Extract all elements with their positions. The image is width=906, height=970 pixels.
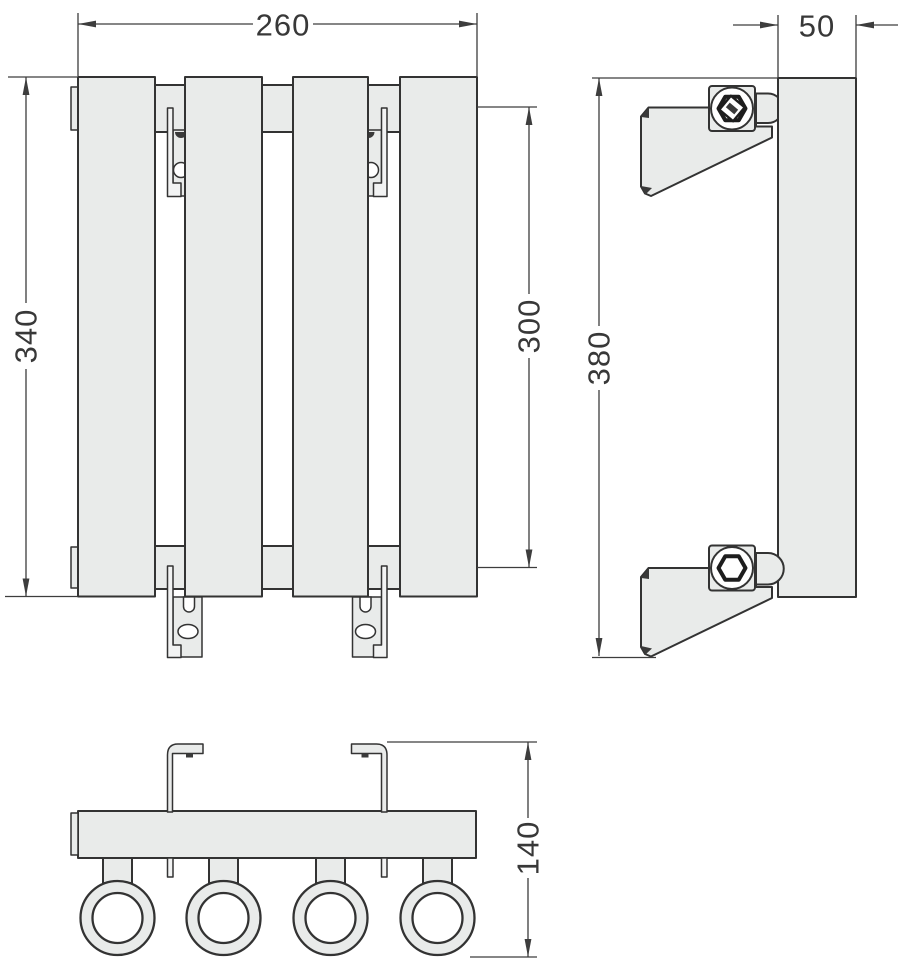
tube-stem-2 bbox=[209, 858, 238, 883]
front-view: 260 340 300 bbox=[5, 8, 547, 658]
arrow-bottom bbox=[23, 579, 30, 597]
bottom-collector-cap bbox=[71, 813, 78, 855]
arrow-top bbox=[525, 742, 532, 760]
bracket-fold bbox=[641, 569, 649, 580]
arrow-left bbox=[760, 22, 778, 29]
side-plug-bottom bbox=[709, 546, 755, 591]
tube-inner-2 bbox=[199, 893, 249, 943]
technical-drawing-page: 260 340 300 bbox=[0, 0, 906, 970]
dim-side-depth: 50 bbox=[733, 9, 898, 78]
bottom-collector bbox=[78, 811, 476, 858]
hook-body bbox=[168, 744, 204, 812]
side-view: 50 380 bbox=[582, 9, 899, 658]
front-panel-1 bbox=[78, 77, 155, 597]
hook-nub bbox=[186, 754, 193, 758]
dim-label-mounting-depth: 140 bbox=[511, 821, 546, 876]
bracket-u-slot bbox=[360, 597, 371, 612]
front-top-collector-cap bbox=[71, 87, 78, 130]
arrow-right bbox=[459, 21, 477, 28]
hook-lower-rail bbox=[382, 858, 388, 877]
hook-lower-rail bbox=[168, 858, 174, 877]
bracket-oval-slot bbox=[178, 625, 198, 639]
tube-inner-1 bbox=[93, 893, 143, 943]
arrow-bottom bbox=[596, 638, 603, 656]
front-bottom-collector-cap bbox=[71, 547, 78, 588]
tube-stem-1 bbox=[103, 858, 132, 883]
dim-front-height: 340 bbox=[5, 77, 77, 597]
tube-stems bbox=[103, 858, 452, 883]
hook-nub bbox=[362, 754, 369, 758]
front-panel-4 bbox=[400, 77, 477, 597]
front-panels bbox=[78, 77, 477, 597]
side-connection-stub-bottom bbox=[756, 553, 784, 585]
dim-label-overall-height: 380 bbox=[582, 331, 617, 386]
bracket-fold bbox=[641, 108, 649, 119]
tube-inner-4 bbox=[413, 893, 463, 943]
tube-stem-3 bbox=[316, 858, 345, 883]
arrow-top bbox=[596, 78, 603, 96]
arrow-top bbox=[23, 77, 30, 95]
dim-label-depth: 50 bbox=[799, 9, 835, 44]
arrow-bottom bbox=[525, 939, 532, 957]
bracket-oval-slot bbox=[356, 625, 376, 639]
dim-connection-spacing: 300 bbox=[477, 107, 547, 568]
tube-sections bbox=[81, 881, 475, 955]
arrow-bottom bbox=[526, 550, 533, 568]
side-valve-top bbox=[709, 86, 755, 131]
bottom-view: 140 bbox=[71, 742, 546, 957]
dim-label-spacing: 300 bbox=[512, 299, 547, 354]
bracket-u-slot bbox=[184, 597, 195, 612]
dim-label-height: 340 bbox=[9, 309, 44, 364]
tube-stem-4 bbox=[423, 858, 452, 883]
front-panel-2 bbox=[185, 77, 262, 597]
dim-front-width: 260 bbox=[78, 8, 477, 77]
front-panel-3 bbox=[293, 77, 368, 597]
arrow-right bbox=[856, 22, 874, 29]
drawing-canvas: 260 340 300 bbox=[0, 0, 906, 970]
side-panel bbox=[778, 78, 856, 597]
dim-label-width: 260 bbox=[256, 8, 311, 43]
tube-inner-3 bbox=[306, 893, 356, 943]
arrow-top bbox=[526, 107, 533, 125]
hook-body bbox=[352, 744, 388, 812]
arrow-left bbox=[78, 21, 96, 28]
